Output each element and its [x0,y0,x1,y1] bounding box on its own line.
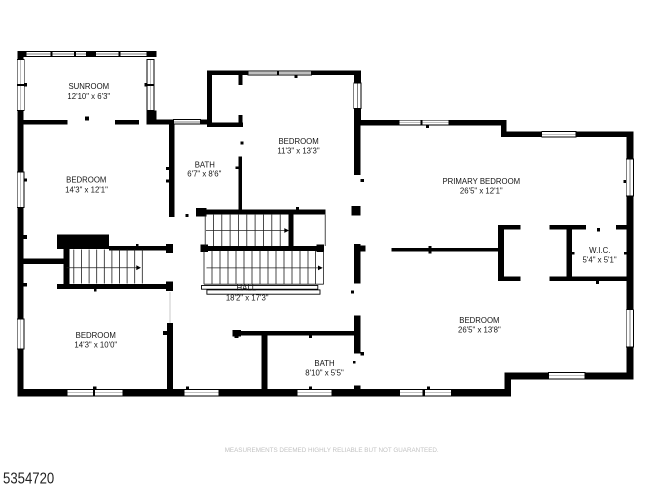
svg-text:5'4" x 5'1": 5'4" x 5'1" [583,256,617,265]
svg-text:W.I.C.: W.I.C. [589,246,610,255]
svg-text:18'2" x 17'3": 18'2" x 17'3" [226,293,269,302]
svg-text:BEDROOM: BEDROOM [459,316,499,325]
svg-text:MEASUREMENTS DEEMED HIGHLY REL: MEASUREMENTS DEEMED HIGHLY RELIABLE BUT … [225,447,439,454]
svg-text:14'3" x 10'0": 14'3" x 10'0" [74,341,117,350]
svg-text:BEDROOM: BEDROOM [76,331,116,340]
svg-text:PRIMARY BEDROOM: PRIMARY BEDROOM [442,177,520,186]
svg-text:BATH: BATH [314,359,334,368]
svg-text:12'10" x 6'3": 12'10" x 6'3" [67,92,110,101]
svg-text:26'5" x 13'8": 26'5" x 13'8" [458,325,501,334]
svg-text:26'5" x 12'1": 26'5" x 12'1" [460,187,503,196]
svg-text:5354720: 5354720 [3,471,54,488]
svg-text:BEDROOM: BEDROOM [278,137,318,146]
svg-text:11'3" x 13'3": 11'3" x 13'3" [277,147,319,156]
svg-text:8'10" x 5'5": 8'10" x 5'5" [305,368,344,377]
svg-text:14'3" x 12'1": 14'3" x 12'1" [65,186,108,195]
svg-text:SUNROOM: SUNROOM [68,82,109,91]
svg-text:BATH: BATH [195,161,215,170]
svg-text:6'7" x 8'6": 6'7" x 8'6" [187,169,221,178]
svg-text:BEDROOM: BEDROOM [66,175,106,184]
svg-text:HALL: HALL [237,284,257,293]
